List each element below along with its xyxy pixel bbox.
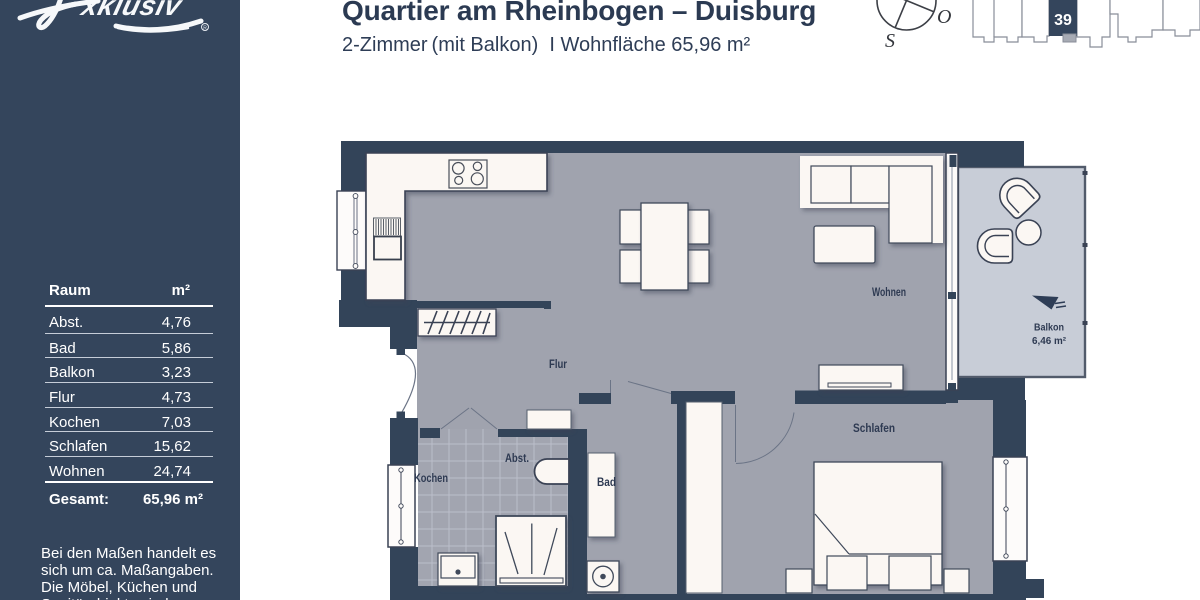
svg-text:S: S xyxy=(885,30,895,52)
svg-text:6,46 m²: 6,46 m² xyxy=(1032,335,1066,347)
svg-text:Flur: Flur xyxy=(549,357,567,371)
svg-text:O: O xyxy=(937,6,951,28)
svg-text:Bad: Bad xyxy=(597,475,616,489)
svg-text:Balkon: Balkon xyxy=(1034,322,1064,334)
svg-text:Kochen: Kochen xyxy=(414,471,448,485)
svg-text:Wohnen: Wohnen xyxy=(872,285,906,299)
svg-text:Schlafen: Schlafen xyxy=(853,421,895,435)
svg-text:Abst.: Abst. xyxy=(505,451,529,465)
svg-text:39: 39 xyxy=(1054,12,1072,29)
